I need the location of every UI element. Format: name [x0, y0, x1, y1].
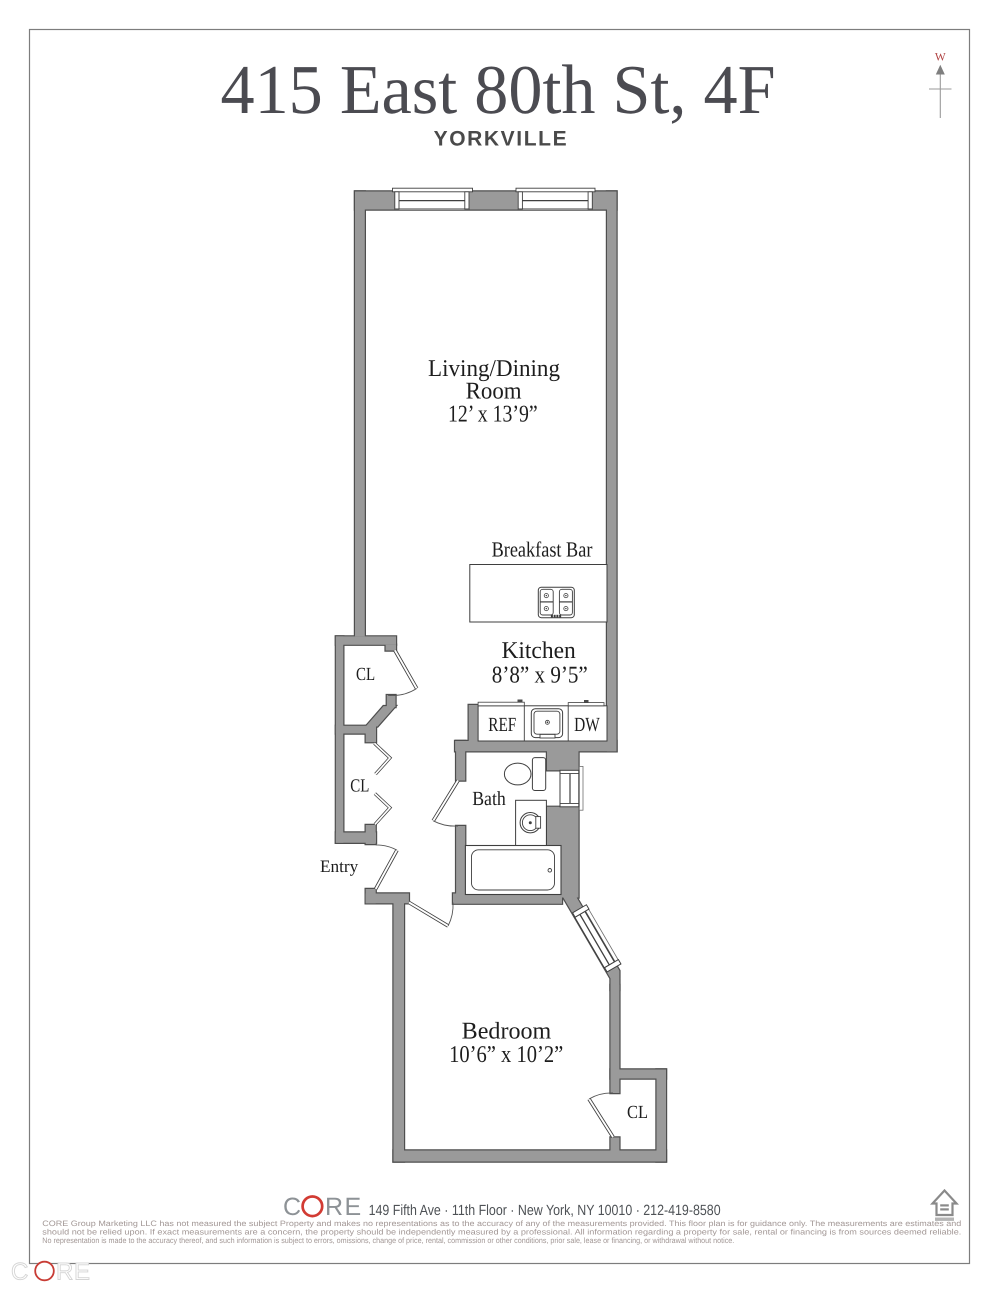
svg-text:No representation is made to t: No representation is made to the accurac…	[42, 1236, 734, 1245]
svg-text:Entry: Entry	[320, 856, 359, 876]
svg-text:8’8” x 9’5”: 8’8” x 9’5”	[492, 663, 588, 689]
svg-text:R: R	[56, 1259, 73, 1286]
svg-text:Bedroom: Bedroom	[462, 1019, 552, 1045]
svg-text:DW: DW	[574, 714, 600, 736]
svg-text:CL: CL	[627, 1103, 648, 1123]
svg-text:C: C	[283, 1193, 301, 1221]
svg-text:CL: CL	[356, 665, 375, 685]
svg-text:REF: REF	[488, 714, 516, 736]
svg-text:YORKVILLE: YORKVILLE	[434, 128, 567, 151]
svg-text:CL: CL	[350, 776, 369, 796]
svg-text:Kitchen: Kitchen	[501, 638, 575, 664]
svg-text:Breakfast Bar: Breakfast Bar	[492, 538, 593, 562]
svg-text:10’6” x 10’2”: 10’6” x 10’2”	[449, 1042, 563, 1068]
svg-text:R: R	[325, 1193, 343, 1221]
svg-text:149 Fifth Ave · 11th Floor · N: 149 Fifth Ave · 11th Floor · New York, N…	[369, 1203, 721, 1219]
svg-text:Bath: Bath	[472, 788, 506, 810]
svg-text:E: E	[345, 1193, 362, 1221]
svg-text:12’ x 13’9”: 12’ x 13’9”	[448, 402, 538, 428]
svg-text:E: E	[74, 1259, 90, 1286]
svg-text:415 East 80th St, 4F: 415 East 80th St, 4F	[221, 52, 776, 129]
svg-text:C: C	[11, 1259, 28, 1286]
svg-text:W: W	[935, 52, 946, 64]
